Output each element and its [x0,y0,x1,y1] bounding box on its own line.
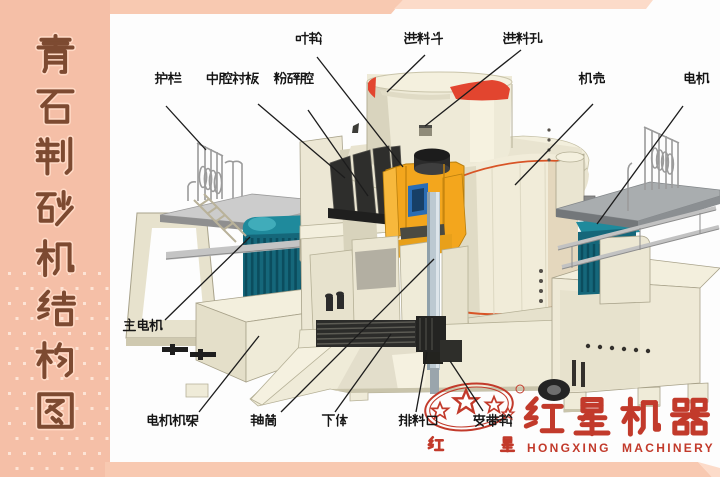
svg-text:HONGXING MACHINERY: HONGXING MACHINERY [527,441,715,455]
